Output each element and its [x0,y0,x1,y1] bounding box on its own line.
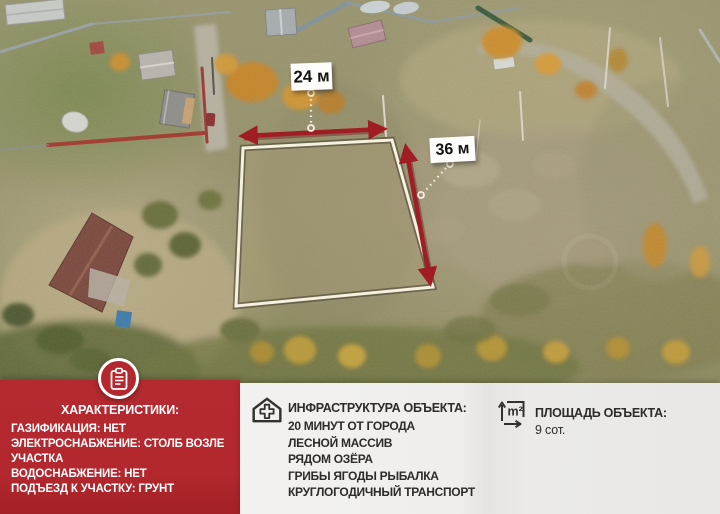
infrastructure-block: ИНФРАСТРУКТУРА ОБЪЕКТА: 20 МИНУТ ОТ ГОРО… [288,401,475,501]
plot-length-label: 36 м [429,136,475,163]
area-block: ПЛОЩАДЬ ОБЪЕКТА: 9 сот. [535,406,667,437]
area-title: ПЛОЩАДЬ ОБЪЕКТА: [535,406,667,420]
characteristic-item: ВОДОСНАБЖЕНИЕ: НЕТ [11,467,229,482]
characteristic-item: ЭЛЕКТРОСНАБЖЕНИЕ: СТОЛБ ВОЗЛЕ УЧАСТКА [11,437,229,467]
infrastructure-item: РЯДОМ ОЗЁРА [288,451,475,468]
characteristic-item: ПОДЪЕЗД К УЧАСТКУ: ГРУНТ [11,482,229,497]
house-plus-icon [251,396,283,429]
characteristics-badge [98,358,139,399]
infrastructure-title: ИНФРАСТРУКТУРА ОБЪЕКТА: [288,401,475,415]
infrastructure-item: ЛЕСНОЙ МАССИВ [288,435,475,452]
info-panel: ИНФРАСТРУКТУРА ОБЪЕКТА: 20 МИНУТ ОТ ГОРО… [240,383,720,514]
infrastructure-item: КРУГЛОГОДИЧНЫЙ ТРАНСПОРТ [288,484,475,501]
listing-image: 24 м 36 м ХАРАКТЕРИСТИКИ: ГАЗИФИКАЦИЯ: Н… [0,0,720,514]
characteristic-item: ГАЗИФИКАЦИЯ: НЕТ [11,422,229,437]
infrastructure-list: 20 МИНУТ ОТ ГОРОДА ЛЕСНОЙ МАССИВ РЯДОМ О… [288,418,475,501]
clipboard-icon [107,366,131,392]
area-value: 9 сот. [535,423,667,437]
infrastructure-item: 20 МИНУТ ОТ ГОРОДА [288,418,475,435]
infrastructure-item: ГРИБЫ ЯГОДЫ РЫБАЛКА [288,468,475,485]
square-meters-glyph: m² [508,405,523,419]
characteristics-list: ГАЗИФИКАЦИЯ: НЕТ ЭЛЕКТРОСНАБЖЕНИЕ: СТОЛБ… [0,422,240,497]
plot-width-label: 24 м [291,62,333,90]
square-meters-icon: m² [495,395,529,436]
characteristics-panel: ХАРАКТЕРИСТИКИ: ГАЗИФИКАЦИЯ: НЕТ ЭЛЕКТРО… [0,380,240,514]
